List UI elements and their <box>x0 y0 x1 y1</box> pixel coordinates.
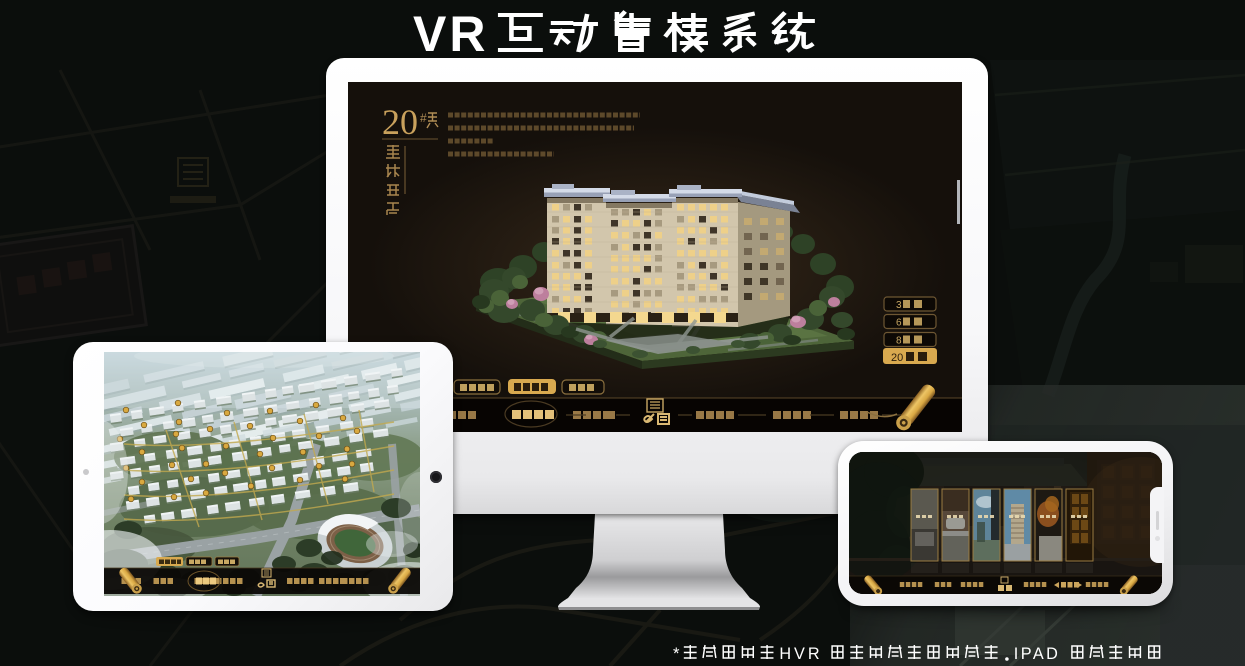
svg-text:*: * <box>673 644 680 663</box>
svg-text:VR: VR <box>413 7 488 59</box>
svg-text:8: 8 <box>896 336 902 347</box>
svg-text:20: 20 <box>891 352 903 364</box>
svg-text:HVR: HVR <box>779 645 822 663</box>
svg-text:#: # <box>420 111 427 125</box>
svg-text:IPAD: IPAD <box>1014 645 1061 663</box>
svg-text:6: 6 <box>896 318 902 329</box>
svg-text:20: 20 <box>382 102 418 142</box>
svg-text:3: 3 <box>896 300 902 311</box>
